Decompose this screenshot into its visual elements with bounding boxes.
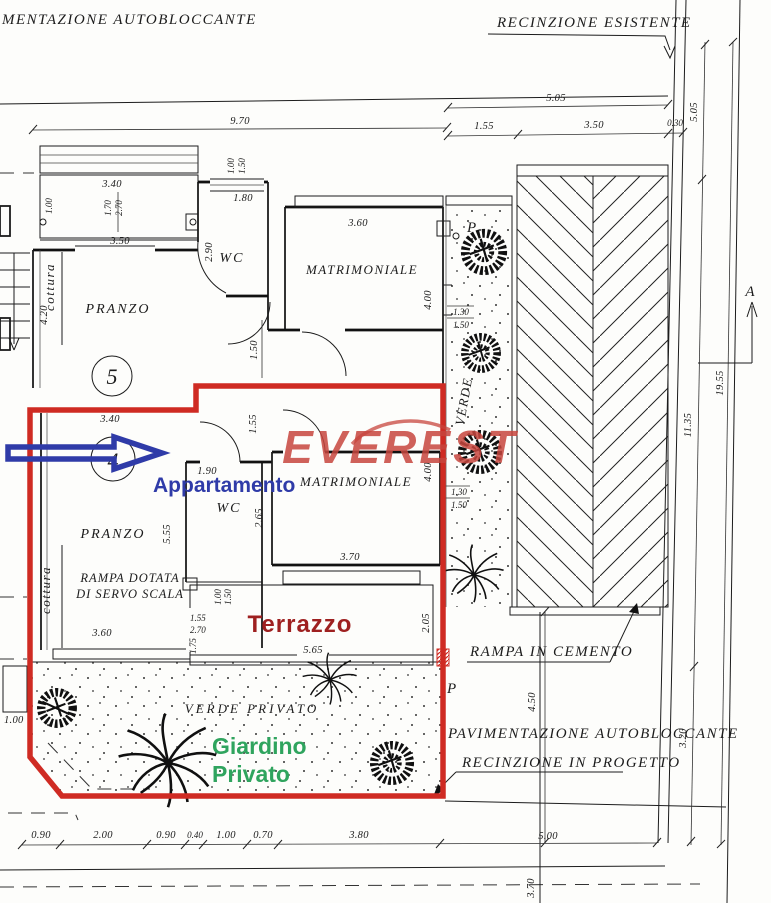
dim-u5-3-50: 3.50 <box>109 236 130 247</box>
room-label-cottura-4: cottura <box>38 566 53 614</box>
dim-u4-1-50b: 1.50 <box>223 589 233 605</box>
appartamento-label: Appartamento <box>153 474 295 497</box>
label-rampa-servo-scala-2: DI SERVO SCALA <box>75 587 184 601</box>
dim-4-50: 4.50 <box>527 692 538 712</box>
dim-0-30: 0.30 <box>667 118 683 128</box>
dim-u5-2-90: 2.90 <box>204 242 215 262</box>
dim-b-5-00: 5.00 <box>538 831 558 842</box>
dim-u4-1-55: 1.55 <box>248 414 259 434</box>
floor-plan-sheet: MENTAZIONE AUTOBLOCCANTE RECINZIONE ESIS… <box>0 0 771 903</box>
dim-11-35: 11.35 <box>683 413 694 437</box>
dim-u5-3-40: 3.40 <box>101 179 122 190</box>
dim-garden-1-00: 1.00 <box>4 715 24 726</box>
dim-u5-4-20: 4.20 <box>39 305 50 325</box>
dim-b-2-00: 2.00 <box>93 830 113 841</box>
dim-u4-2-05: 2.05 <box>421 613 432 633</box>
floor-plan-drawing: MENTAZIONE AUTOBLOCCANTE RECINZIONE ESIS… <box>0 0 771 903</box>
dim-b-3-80: 3.80 <box>348 830 369 841</box>
dim-b-0-40: 0.40 <box>187 830 203 840</box>
dimension-lines-bottom: 0.90 2.00 0.90 0.40 1.00 0.70 3.80 5.00 <box>18 830 661 849</box>
dim-u4-1-75: 1.75 <box>188 638 198 654</box>
dim-u4-1-00: 1.00 <box>213 589 223 605</box>
private-garden: 1.00 VERDE PRIVATO Giardino Privato <box>3 653 443 808</box>
dim-19-55: 19.55 <box>715 370 726 395</box>
room-label-matrimoniale-4: MATRIMONIALE <box>299 474 412 489</box>
room-label-pranzo-5: PRANZO <box>85 302 151 317</box>
dim-u5-2-70: 2.70 <box>114 200 124 216</box>
label-rampa-servo-scala-1: RAMPA DOTATA <box>79 571 179 585</box>
p-marker-unit4: P <box>446 681 456 697</box>
dim-b-1-00: 1.00 <box>216 830 236 841</box>
dim-u5-1-00: 1.00 <box>44 198 54 214</box>
dim-9-70: 9.70 <box>230 116 250 127</box>
verde-strip: VERDE <box>444 196 512 607</box>
unit5-plan: PRANZO cottura WC MATRIMONIALE 5 P 3.40 … <box>33 146 476 396</box>
dim-u4-3-60: 3.60 <box>91 628 112 639</box>
terrazzo-label: Terrazzo <box>248 611 353 638</box>
dim-b-0-90a: 0.90 <box>31 830 51 841</box>
dim-1-55-top: 1.55 <box>474 121 494 132</box>
label-rampa-in-cemento: RAMPA IN CEMENTO <box>469 644 633 660</box>
dim-u5-1-70: 1.70 <box>103 200 113 216</box>
dim-u4-2-70: 2.70 <box>190 625 206 635</box>
room-label-wc-4: WC <box>217 501 242 516</box>
room-label-matrimoniale-5: MATRIMONIALE <box>305 262 418 277</box>
dim-u4-5-65: 5.65 <box>303 645 323 656</box>
concrete-ramp <box>510 165 668 615</box>
room-label-wc-5: WC <box>220 251 245 266</box>
everest-watermark: EVEREST <box>282 421 519 473</box>
section-a-letter: A <box>744 284 755 300</box>
label-pavimentazione-top: MENTAZIONE AUTOBLOCCANTE <box>1 12 257 28</box>
dim-u5-1-00b: 1.00 <box>226 158 236 174</box>
dim-b-0-90b: 0.90 <box>156 830 176 841</box>
label-recinzione-esistente: RECINZIONE ESISTENTE <box>496 15 692 31</box>
giardino-label-line2: Privato <box>212 761 290 787</box>
dim-u5-4-00: 4.00 <box>423 290 434 310</box>
dim-u5-1-80: 1.80 <box>233 193 253 204</box>
dim-u4-1-55b: 1.55 <box>190 613 206 623</box>
label-recinzione-in-progetto: RECINZIONE IN PROGETTO <box>461 755 681 771</box>
label-pavimentazione-autobloccante: PAVIMENTAZIONE AUTOBLOCCANTE <box>447 726 739 742</box>
dim-u4-3-40: 3.40 <box>99 414 120 425</box>
balcony-railing <box>40 146 198 173</box>
section-a-marker: A <box>698 284 757 363</box>
dim-5-05-top: 5.05 <box>546 93 566 104</box>
recinzione-esistente-callout: RECINZIONE ESISTENTE <box>488 15 692 58</box>
room-label-pranzo-4: PRANZO <box>80 527 146 542</box>
room-label-cottura-5: cottura <box>42 263 57 311</box>
dim-u4-5-55: 5.55 <box>162 524 173 544</box>
dim-u5-3-60: 3.60 <box>347 218 368 229</box>
dim-3-70-bottom: 3.70 <box>526 878 537 899</box>
verde-privato-label: VERDE PRIVATO <box>185 701 319 716</box>
dim-3-50-top: 3.50 <box>583 120 604 131</box>
giardino-label-line1: Giardino <box>212 733 307 759</box>
stairs <box>0 206 30 350</box>
dim-u5-1-50b: 1.50 <box>237 158 247 174</box>
dim-u4-2-65: 2.65 <box>254 508 265 528</box>
dim-b-0-70: 0.70 <box>253 830 273 841</box>
dim-5-05-right: 5.05 <box>689 102 700 122</box>
unit5-number: 5 <box>107 364 118 389</box>
dim-u5-1-50d: 1.50 <box>249 340 260 360</box>
dim-u4-3-70: 3.70 <box>339 552 360 563</box>
